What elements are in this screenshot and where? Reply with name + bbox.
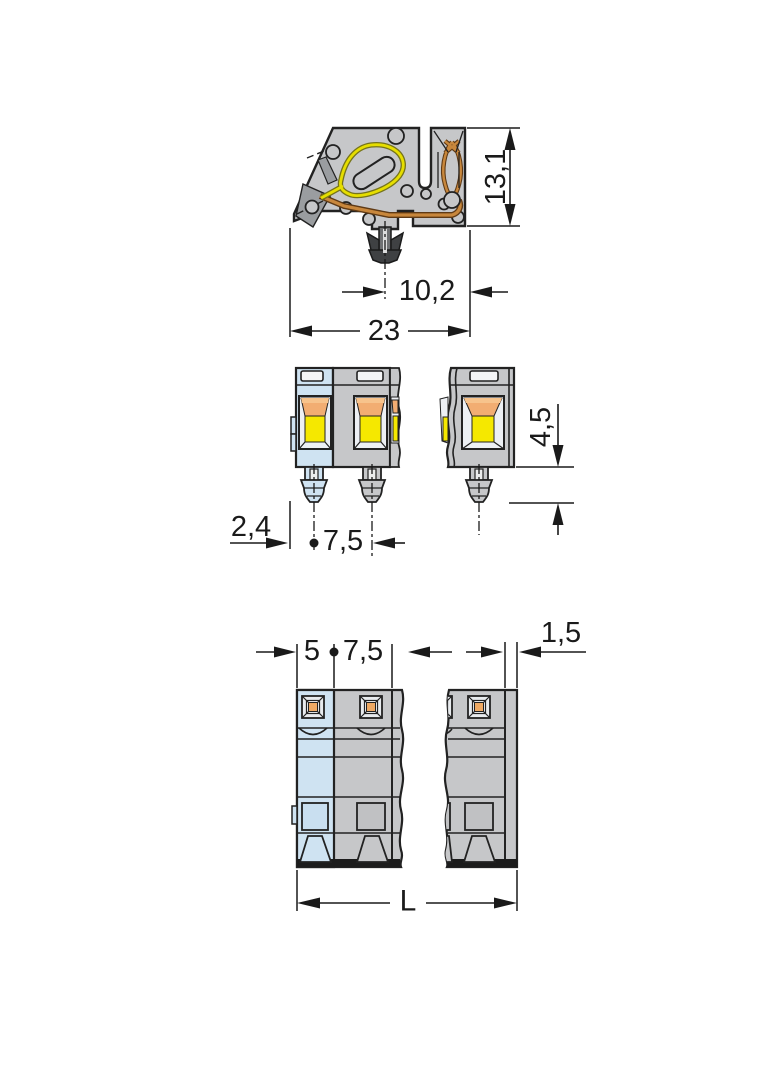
dim-foot-pitch-label: 7,5 (323, 525, 363, 557)
wire-funnel-2 (354, 396, 387, 449)
dim-foot-to-edge: 10,2 (342, 275, 508, 307)
dim-total-length: L (297, 870, 517, 918)
torn-funnel-fragment (391, 397, 399, 443)
dim-total-length-label: L (400, 885, 417, 918)
dim-foot-pitch: 7,5 (310, 525, 406, 557)
wire-funnel-1 (299, 396, 331, 449)
side-view: 13,1 10,2 23 (290, 128, 520, 347)
technical-drawing-page: 13,1 10,2 23 (0, 0, 784, 1066)
underside-view: 5 7,5 1,5 L (256, 617, 586, 918)
pole-opening-1 (302, 696, 324, 718)
dim-pole-pitch-label: 7,5 (343, 635, 383, 667)
front-view: 2,4 7,5 4,5 (230, 368, 574, 557)
dim-edge-to-foot-label: 2,4 (231, 511, 271, 543)
dim-end-width-label: 5 (304, 635, 320, 667)
dim-edge-to-foot: 2,4 (230, 501, 290, 549)
side-tab-underside (292, 806, 297, 824)
dim-foot-to-edge-label: 10,2 (399, 275, 455, 307)
dim-foot-length: 4,5 (509, 404, 574, 535)
dim-height-label: 13,1 (480, 149, 512, 205)
wire-funnel-3 (462, 396, 504, 449)
pole-opening-3 (468, 696, 490, 718)
dim-end-width: 5 7,5 (256, 635, 452, 688)
dim-end-plate: 1,5 (466, 617, 586, 688)
side-tab (291, 417, 296, 451)
dimension-drawing: 13,1 10,2 23 (0, 0, 784, 1066)
torn-funnel-fragment-right (440, 397, 448, 443)
dim-end-plate-label: 1,5 (541, 617, 581, 649)
dim-foot-length-label: 4,5 (525, 407, 557, 447)
dim-height: 13,1 (467, 128, 520, 226)
dim-depth-label: 23 (368, 315, 400, 347)
pole-opening-2 (360, 696, 382, 718)
